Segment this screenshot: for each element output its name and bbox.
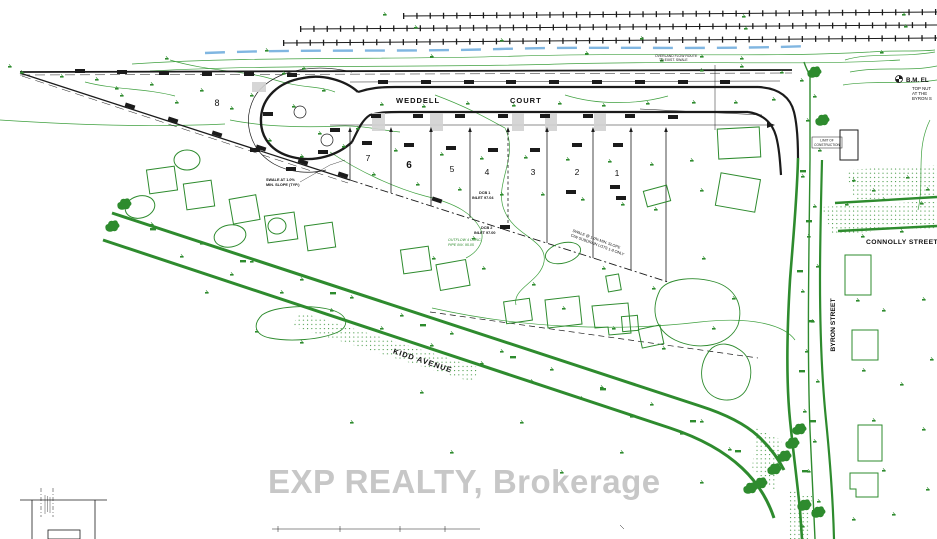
street-label-connolly: CONNOLLY STREET bbox=[866, 239, 937, 246]
survey-tags bbox=[75, 69, 730, 229]
dcb2-label: DCB 2 bbox=[481, 226, 492, 230]
detail-fragment bbox=[20, 488, 107, 539]
lot-number-5: 5 bbox=[450, 164, 455, 174]
railway-tracks bbox=[283, 12, 937, 43]
bottom-reference-line bbox=[272, 525, 624, 532]
lot-number-3: 3 bbox=[531, 167, 536, 177]
benchmark-line3: BYRON S bbox=[912, 96, 932, 101]
dcb2-elev: INLET 97.00 bbox=[474, 231, 496, 235]
benchmark-icon bbox=[896, 76, 903, 83]
street-label-court: COURT bbox=[510, 96, 542, 105]
site-plan-drawing: WEDDELL COURT CONNOLLY STREET BYRON STRE… bbox=[0, 0, 937, 539]
watermark-exp-realty: EXP REALTY, Brokerage bbox=[268, 463, 688, 501]
lot-number-8: 8 bbox=[214, 98, 219, 108]
lot-number-6: 6 bbox=[406, 160, 412, 171]
benchmark-title: B.M. EL bbox=[906, 77, 929, 84]
swale-note: SWALE AT 1.0% bbox=[266, 178, 296, 182]
lot-number-4: 4 bbox=[485, 167, 490, 177]
lot-number-2: 2 bbox=[575, 167, 580, 177]
lot-number-7: 7 bbox=[366, 153, 371, 163]
site-plan-page: WEDDELL COURT CONNOLLY STREET BYRON STRE… bbox=[0, 0, 937, 539]
street-label-weddell: WEDDELL bbox=[396, 96, 440, 105]
lot-number-1: 1 bbox=[615, 168, 620, 178]
lot-numbers: 8 7 6 5 4 3 2 1 bbox=[214, 98, 619, 178]
limit-note: LIMIT OF bbox=[820, 139, 833, 143]
outflow-note2: PIPE INV. 95.05 bbox=[448, 243, 474, 247]
swale-note2: MIN. SLOPE (TYP.) bbox=[266, 183, 300, 187]
dcb1-label: DCB 1 bbox=[479, 191, 490, 195]
limit-note2: CONSTRUCTION bbox=[814, 143, 840, 147]
outflow-note: OUTFLOW 4 CONC. bbox=[448, 238, 482, 242]
driveway-hatches bbox=[252, 82, 606, 131]
stream-ditch bbox=[205, 46, 810, 53]
overland-note2: TO EXIST. SWALE bbox=[659, 58, 688, 62]
existing-building-black bbox=[840, 130, 858, 160]
annotation-marks bbox=[8, 12, 934, 527]
drawing-annotations: SWALE AT 1.0% MIN. SLOPE (TYP.) DCB 1 IN… bbox=[266, 54, 842, 257]
ponds-wetlands bbox=[256, 239, 751, 400]
benchmark-note: B.M. EL TOP NUT AT THE BYRON S bbox=[896, 76, 932, 102]
dcb1-elev: INLET 97.04 bbox=[472, 196, 494, 200]
byron-street-road bbox=[787, 62, 834, 539]
street-label-byron: BYRON STREET bbox=[830, 298, 837, 352]
